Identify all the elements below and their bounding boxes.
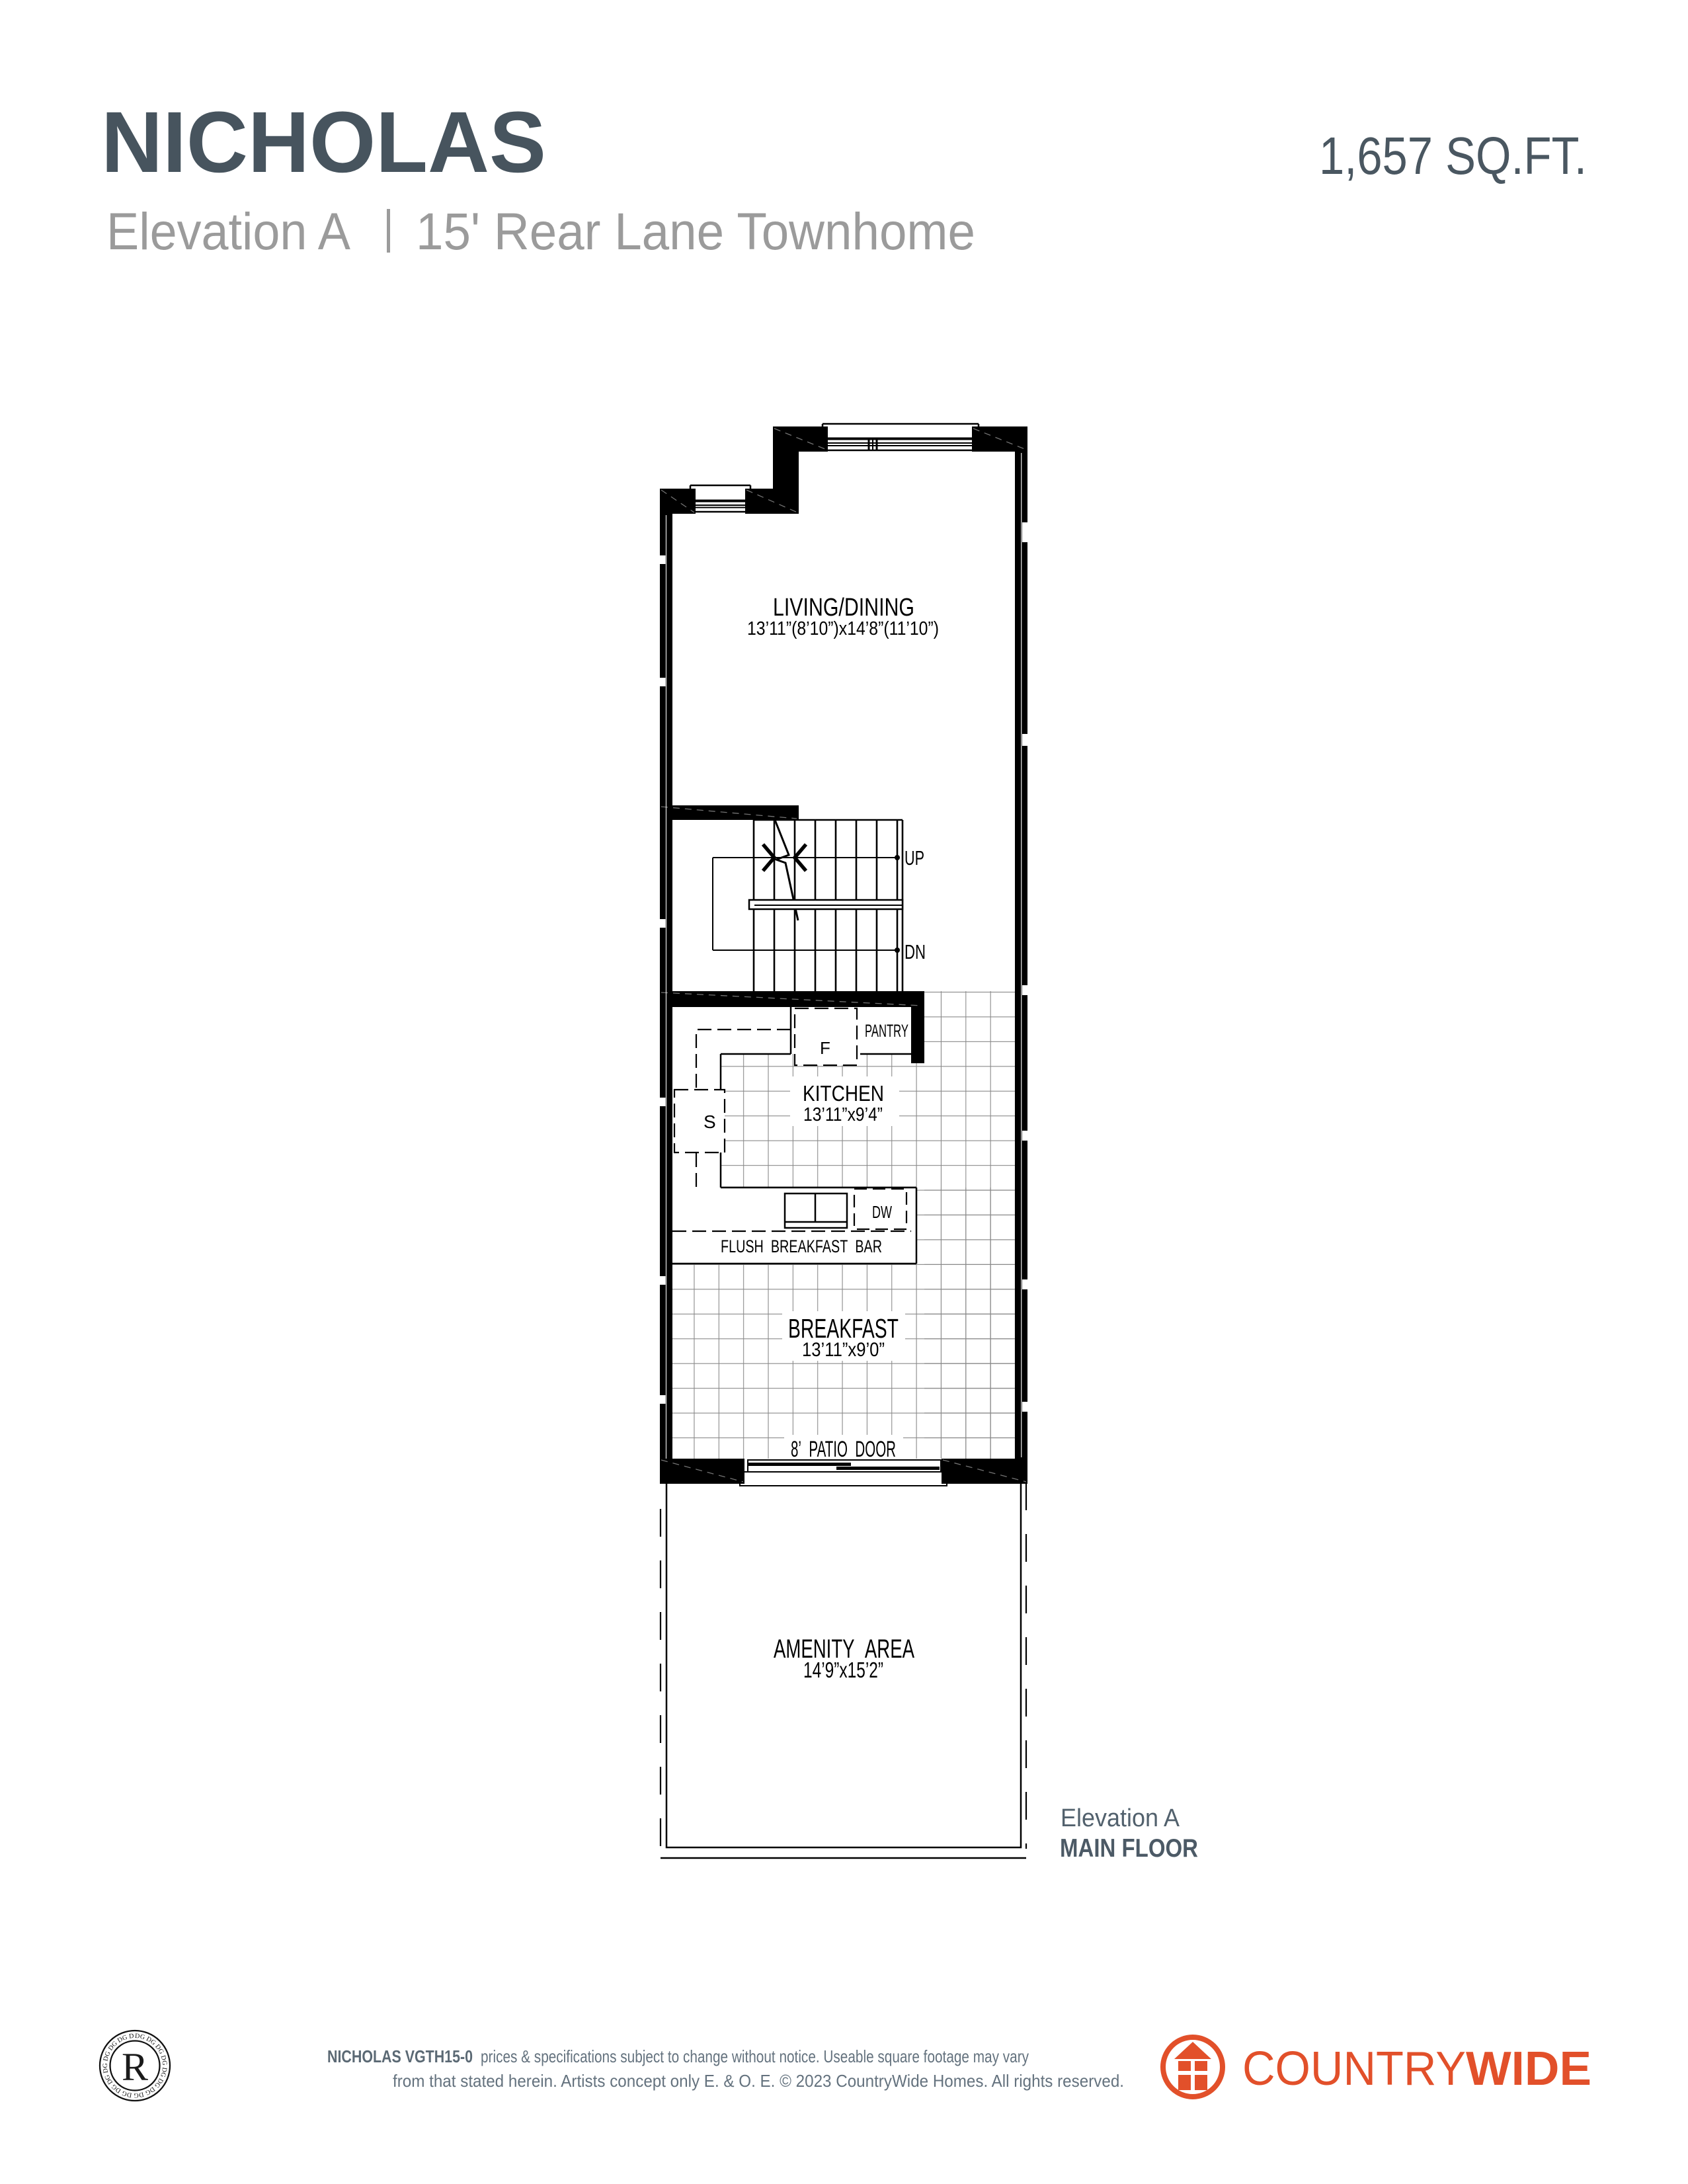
svg-text:LIVING/DINING: LIVING/DINING [773,594,914,622]
svg-text:Elevation A: Elevation A [1061,1804,1180,1832]
svg-text:UP: UP [904,846,924,870]
svg-text:WIDE: WIDE [1466,2042,1591,2095]
svg-text:15' Rear Lane Townhome: 15' Rear Lane Townhome [416,202,975,261]
svg-text:from that stated herein. Artis: from that stated herein. Artists concept… [393,2071,1124,2091]
svg-text:F: F [820,1038,830,1058]
svg-text:PANTRY: PANTRY [865,1021,908,1041]
svg-text:DG DG DG DG DG DG DG DG DG DG: DG DG DG DG DG DG DG DG DG DG DG DG DG D… [0,0,168,2099]
svg-text:R: R [122,2045,148,2089]
svg-text:1,657 SQ.FT.: 1,657 SQ.FT. [1319,126,1587,185]
svg-text:Elevation A: Elevation A [106,202,350,261]
svg-text:DN: DN [904,940,926,963]
svg-text:13’11”(8’10”)x14’8”(11’10”): 13’11”(8’10”)x14’8”(11’10”) [747,618,939,639]
svg-text:S: S [703,1112,716,1132]
svg-text:13’11”x9’4”: 13’11”x9’4” [803,1104,883,1125]
svg-text:prices & specifications subjec: prices & specifications subject to chang… [481,2046,1029,2066]
svg-text:DW: DW [872,1202,892,1222]
svg-text:13’11”x9’0”: 13’11”x9’0” [802,1339,885,1361]
svg-text:NICHOLAS: NICHOLAS [101,93,546,190]
svg-text:FLUSH BREAKFAST BAR: FLUSH BREAKFAST BAR [721,1236,882,1256]
svg-text:KITCHEN: KITCHEN [803,1081,884,1106]
svg-text:MAIN FLOOR: MAIN FLOOR [1060,1834,1198,1863]
svg-text:NICHOLAS VGTH15-0: NICHOLAS VGTH15-0 [327,2046,473,2066]
svg-text:COUNTRY: COUNTRY [1242,2042,1466,2095]
svg-text:8’ PATIO DOOR: 8’ PATIO DOOR [791,1437,896,1462]
svg-text:14’9”x15’2”: 14’9”x15’2” [803,1658,883,1682]
